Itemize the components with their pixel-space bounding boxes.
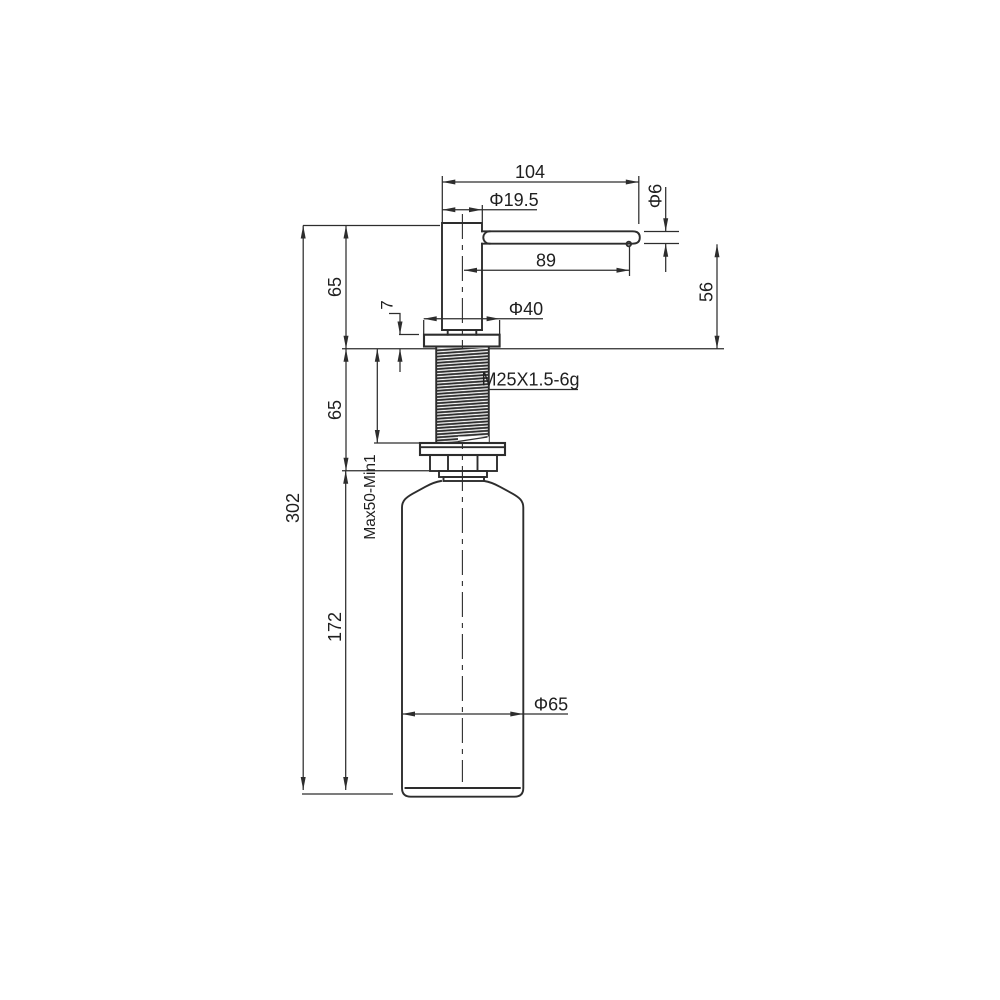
arrowhead-down-icon	[715, 336, 720, 349]
label-spout-tip-diameter: Φ6	[646, 184, 666, 208]
arrowhead-right-icon	[510, 712, 523, 717]
arrowhead-left-icon	[442, 180, 455, 185]
arrowhead-up-icon	[398, 349, 403, 362]
arrowhead-right-icon	[617, 268, 630, 273]
arrowhead-right-icon	[469, 207, 482, 212]
label-spout-overall-length: 104	[515, 162, 545, 182]
label-spout-height: 56	[697, 282, 717, 302]
label-thread-spec: M25X1.5-6g	[481, 370, 579, 390]
spout-outline	[482, 231, 640, 243]
label-thread-length: 65	[325, 400, 345, 420]
collar-lower	[444, 477, 485, 481]
arrowhead-up-icon	[375, 349, 380, 362]
thread-shank	[436, 348, 489, 443]
dimension-flange-thickness-7	[389, 314, 403, 373]
arrowhead-down-icon	[398, 322, 403, 335]
spout-endcap-arc	[483, 231, 489, 243]
thread-hatch	[436, 348, 489, 443]
arrowhead-down-icon	[375, 430, 380, 443]
arrowhead-up-icon	[344, 349, 349, 362]
arrowhead-up-icon	[663, 244, 668, 257]
arrowhead-down-icon	[343, 777, 348, 790]
mounting-flange	[424, 335, 500, 347]
arrowhead-right-icon	[626, 180, 639, 185]
label-deck-range: Max50-Min1	[362, 454, 379, 539]
arrowhead-left-icon	[464, 268, 477, 273]
label-spout-reach: 89	[536, 251, 556, 271]
arrowhead-down-icon	[301, 777, 306, 790]
arrowhead-left-icon	[442, 207, 455, 212]
dimension-deck-range	[375, 349, 380, 443]
arrowhead-down-icon	[663, 218, 668, 231]
label-head-height: 65	[325, 277, 345, 297]
label-bottle-diameter: Φ65	[534, 695, 568, 715]
label-flange-diameter: Φ40	[509, 299, 543, 319]
arrowhead-down-icon	[344, 458, 349, 471]
arrowhead-left-icon	[402, 712, 415, 717]
label-overall-height: 302	[283, 493, 303, 523]
drawing-canvas: 104 Φ19.5 Φ6 89 56 65 7 Φ40 M25X1.5-6g 6…	[0, 0, 1000, 1000]
dimension-labels: 104 Φ19.5 Φ6 89 56 65 7 Φ40 M25X1.5-6g 6…	[283, 162, 717, 715]
arrowhead-down-icon	[344, 336, 349, 349]
label-head-diameter: Φ19.5	[489, 190, 538, 210]
arrowhead-up-icon	[301, 226, 306, 239]
spout	[482, 231, 640, 246]
technical-drawing-svg: 104 Φ19.5 Φ6 89 56 65 7 Φ40 M25X1.5-6g 6…	[0, 0, 1000, 1000]
arrowhead-up-icon	[343, 471, 348, 484]
hex-nut	[430, 455, 497, 471]
label-bottle-height: 172	[325, 612, 345, 642]
arrowhead-left-icon	[424, 316, 437, 321]
arrowhead-up-icon	[344, 226, 349, 239]
arrowhead-right-icon	[487, 316, 500, 321]
label-flange-thickness: 7	[378, 300, 397, 309]
arrowhead-up-icon	[715, 244, 720, 257]
